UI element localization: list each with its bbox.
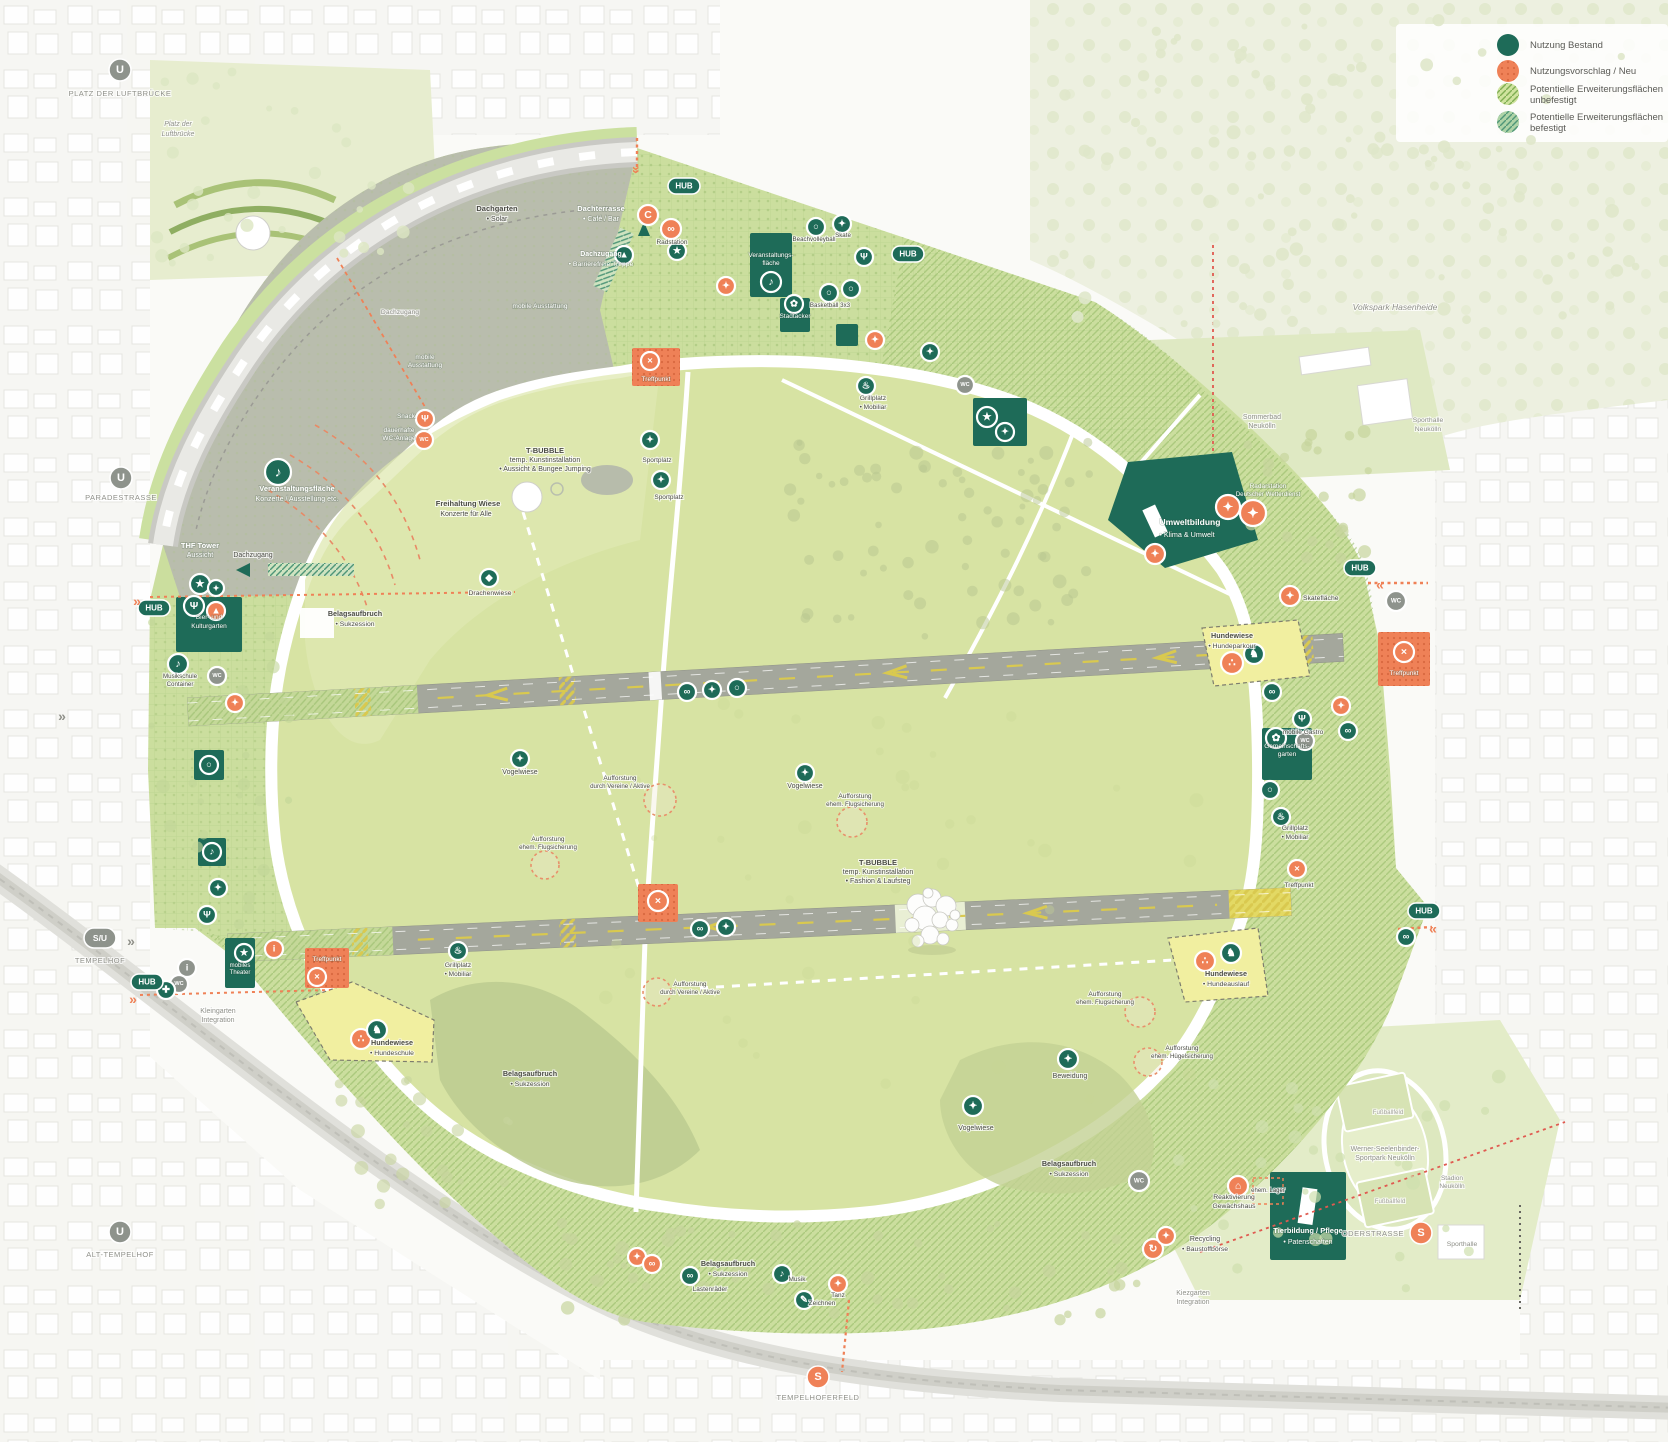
map-label: temp. Kunstinstallation (510, 457, 581, 464)
entry-chevron: » (1376, 579, 1384, 595)
grill-icon: ♨ (449, 942, 467, 960)
map-label: Sportplatz (642, 457, 671, 464)
svg-text:∞: ∞ (1403, 932, 1410, 943)
svg-text:WC: WC (212, 673, 221, 679)
legend-label: Potentielle Erweiterungsflächen (1530, 84, 1663, 95)
hub-marker: HUB (138, 600, 170, 616)
map-label: • Sukzession (1049, 1171, 1088, 1178)
bird-icon: ✦ (963, 1096, 983, 1116)
map-label: Fußballfeld (1375, 1198, 1406, 1205)
map-label: Bier- und (196, 614, 223, 621)
svg-text:♪: ♪ (175, 658, 180, 670)
tennis-icon: ○ (842, 280, 860, 298)
skate-icon: ✦ (833, 215, 851, 233)
map-label: • Café / Bar (583, 216, 620, 223)
svg-text:✦: ✦ (633, 1252, 641, 1263)
svg-text:×: × (647, 356, 653, 367)
map-label: Musik (789, 1276, 807, 1283)
hub-marker: HUB (131, 974, 163, 990)
svg-text:◆: ◆ (484, 573, 493, 584)
map-label: temp. Kunstinstallation (843, 869, 914, 876)
station-label: PARADESTRASSE (85, 493, 157, 502)
map-label: durch Vereine / Aktive (590, 783, 650, 790)
svg-text:✚: ✚ (162, 985, 170, 996)
svg-text:✦: ✦ (1286, 590, 1295, 602)
svg-text:○: ○ (734, 683, 740, 694)
gastro-icon: Ψ (855, 248, 873, 266)
map-label: Reaktivierung (1213, 1194, 1255, 1201)
event-icon: ♪ (761, 272, 781, 292)
map-label: Beweidung (1053, 1073, 1088, 1080)
entry-chevron: » (129, 991, 137, 1007)
treffpunkt-icon: × (648, 891, 668, 911)
map-label: Vogelwiese (958, 1125, 994, 1132)
map-label: Belagsaufbruch (701, 1259, 755, 1268)
map-label: Tanz (831, 1292, 845, 1299)
map-label: Aufforstung (603, 775, 637, 782)
bike-icon: ∞ (1397, 928, 1415, 946)
sport-icon: ✦ (652, 471, 670, 489)
bird-icon: ✦ (511, 750, 529, 768)
tempelhofer-feld-plan[interactable]: ♪C▲ΨWC★✦◆✦✦✦✦✦✦∞✦○∞✦✦✦✦✦∴♞∴♞∴♞Ψ▲♪WC✦✦ΨiW… (0, 0, 1668, 1442)
station-label: ODERSTRASSE (1342, 1229, 1404, 1238)
svg-text:U: U (117, 472, 125, 484)
svg-text:♨: ♨ (1277, 812, 1285, 823)
map-label: Lastenräder (693, 1286, 729, 1293)
svg-text:∞: ∞ (1269, 687, 1276, 698)
wc-icon: WC (415, 431, 433, 449)
svg-text:Ψ: Ψ (860, 252, 868, 263)
svg-text:✦: ✦ (646, 435, 654, 446)
map-label: • Mobiliar (1282, 834, 1310, 841)
svg-text:♨: ♨ (454, 946, 462, 957)
map-label: Stadtacker (779, 313, 811, 320)
svg-text:×: × (314, 972, 320, 983)
map-label: Treffpunkt (1390, 670, 1419, 677)
map-label: • Hundeschule (370, 1050, 414, 1057)
hub-marker: HUB (892, 246, 924, 262)
svg-text:Ψ: Ψ (203, 910, 211, 921)
station-label: TEMPELHOFERFELD (777, 1393, 860, 1402)
map-label: T-BUBBLE (526, 446, 564, 455)
svg-text:♞: ♞ (1226, 947, 1235, 959)
map-label: • Klima & Umwelt (1159, 530, 1214, 539)
svg-text:×: × (1294, 864, 1300, 875)
gastro-icon: Ψ (1293, 710, 1311, 728)
map-label: Hundewiese (371, 1038, 413, 1047)
svg-text:WC: WC (960, 382, 969, 388)
svg-text:i: i (273, 944, 276, 955)
map-label: Treffpunkt (1285, 882, 1314, 889)
map-label: Aussicht (187, 552, 214, 559)
climbing-icon: ✦ (996, 423, 1014, 441)
svg-text:∴: ∴ (1228, 657, 1236, 669)
svg-text:★: ★ (239, 948, 249, 959)
treffpunkt-icon: × (1394, 642, 1414, 662)
map-label: Platz der (164, 121, 192, 128)
map-label: Freihaltung Wiese (436, 499, 501, 508)
sport-icon: ✦ (641, 431, 659, 449)
svg-text:C: C (644, 209, 652, 221)
svg-text:♪: ♪ (275, 465, 282, 480)
map-label: Hundewiese (1211, 631, 1253, 640)
map-label: Basketball 3x3 (810, 302, 851, 309)
map-label: • Baustoffbörse (1182, 1246, 1228, 1253)
gastronomy-icon: Ψ (184, 596, 204, 616)
svg-text:S: S (1417, 1227, 1424, 1239)
svg-text:✦: ✦ (834, 1279, 842, 1290)
map-label: Sommerbad (1243, 414, 1281, 421)
map-label: Snack (397, 413, 416, 420)
map-label: Beachvolleyball (793, 236, 836, 243)
svg-text:○: ○ (1267, 785, 1273, 796)
svg-text:✦: ✦ (231, 698, 239, 709)
map-label: Grillplatz (860, 395, 887, 402)
svg-text:WC: WC (1134, 1178, 1145, 1185)
kiosk-icon: ✦ (226, 694, 244, 712)
map-label: Neukölln (1415, 426, 1442, 433)
map-label: • Mobiliar (445, 971, 473, 978)
greenhouse-icon: ⌂ (1228, 1176, 1248, 1196)
map-label: Musikschule (163, 673, 198, 680)
radar-icon: ✦ (1216, 495, 1240, 519)
svg-text:WC: WC (419, 437, 428, 443)
info-icon: i (265, 940, 283, 958)
entry-chevron: » (629, 166, 645, 174)
svg-text:✦: ✦ (212, 583, 219, 593)
map-label: mobiles (230, 963, 251, 969)
map-label: Dachgarten (476, 204, 518, 213)
map-label: Kleingarten (200, 1008, 236, 1015)
dog-icon: ♞ (1221, 943, 1241, 963)
legend-label: Potentielle Erweiterungsflächen (1530, 112, 1663, 123)
map-label: Skatefläche (1303, 595, 1339, 602)
bike-station-icon: ∞ (661, 219, 681, 239)
svg-text:♪: ♪ (780, 1269, 785, 1280)
map-label: Recycling (1190, 1236, 1220, 1243)
treffpunkt-icon: × (641, 352, 659, 370)
afforestation-circle (531, 851, 559, 879)
education-icon: ✦ (1240, 500, 1266, 526)
map-label: Belagsaufbruch (328, 609, 382, 618)
svg-text:✿: ✿ (790, 299, 798, 310)
music-school-icon: ♪ (168, 654, 188, 674)
grazing-icon: ✦ (1058, 1049, 1078, 1069)
svg-text:○: ○ (826, 288, 832, 299)
svg-text:♨: ♨ (862, 381, 870, 392)
map-label: mobile (415, 354, 435, 361)
grill-icon: ♨ (1272, 808, 1290, 826)
theater-icon: ★ (235, 944, 253, 962)
svg-text:✦: ✦ (708, 685, 716, 696)
map-label: ehem. Lager (1251, 1188, 1285, 1194)
map-label: fläche (762, 260, 780, 267)
svg-text:○: ○ (813, 222, 819, 233)
svg-text:∞: ∞ (697, 924, 704, 935)
map-label: • Aussicht & Bungee Jumping (499, 466, 591, 473)
map-label: Tierbildung / Pflege (1273, 1226, 1342, 1235)
map-label: Sportplatz (654, 494, 683, 501)
pedestrian-icon: ✦ (703, 681, 721, 699)
svg-text:✦: ✦ (516, 754, 524, 765)
paw-icon: ∴ (1195, 951, 1215, 971)
svg-text:✦: ✦ (1151, 548, 1160, 560)
svg-text:✦: ✦ (1162, 1231, 1170, 1242)
hub-marker: HUB (668, 178, 700, 194)
table-tennis-icon: ○ (200, 756, 218, 774)
sport-icon: ✦ (921, 343, 939, 361)
map-label: Grillplatz (445, 962, 472, 969)
svg-text:✦: ✦ (1337, 701, 1345, 712)
svg-text:×: × (1401, 646, 1407, 658)
entry-chevron: » (1429, 923, 1437, 939)
map-label: ehem. Flugsicherung (519, 844, 577, 851)
svg-text:♪: ♪ (768, 276, 773, 288)
map-label: Sporthalle (1413, 417, 1444, 424)
map-label: Aufforstung (1165, 1045, 1199, 1052)
svg-text:Ψ: Ψ (190, 600, 199, 612)
map-label: Gemeinschafts- (1264, 743, 1310, 750)
svg-text:HUB: HUB (1415, 907, 1433, 916)
cafe-icon: C (638, 205, 658, 225)
svg-text:HUB: HUB (145, 604, 163, 613)
map-label: Gewächshaus (1212, 1203, 1256, 1210)
svg-text:○: ○ (206, 760, 212, 771)
map-label: T-BUBBLE (859, 858, 897, 867)
new-use-icon: ✦ (866, 331, 884, 349)
map-label: dauerhafte (383, 427, 414, 434)
svg-text:✦: ✦ (1223, 500, 1234, 514)
snack-icon: Ψ (416, 410, 434, 428)
viewpoint-icon: ✦ (208, 580, 224, 596)
map-label: Treffpunkt (642, 376, 671, 383)
tools-icon: ✦ (1157, 1227, 1175, 1245)
map-label: Integration (1176, 1299, 1209, 1306)
grill-icon: ♨ (857, 377, 875, 395)
map-label: • Barrierefreie Treppe (569, 261, 634, 268)
svg-text:✦: ✦ (214, 883, 222, 894)
map-label: • Mobiliar (860, 404, 888, 411)
map-label: Stadion (1441, 1175, 1463, 1182)
entry-chevron: » (133, 593, 141, 609)
svg-text:✦: ✦ (722, 281, 730, 292)
svg-text:✦: ✦ (838, 219, 846, 230)
paw-icon: ∴ (1221, 652, 1243, 674)
svg-text:i: i (186, 963, 189, 974)
svg-text:S/U: S/U (93, 933, 107, 943)
map-label: Volkspark Hasenheide (1353, 302, 1438, 312)
map-label: Radstation (656, 239, 687, 246)
svg-text:✦: ✦ (1001, 427, 1009, 438)
map-label: Theater (230, 970, 251, 976)
svg-text:♞: ♞ (372, 1024, 381, 1036)
map-label: ehem. Hügelsicherung (1151, 1053, 1213, 1060)
hub-marker: HUB (1408, 903, 1440, 919)
wc-icon: WC (1129, 1171, 1149, 1191)
entry-chevron: » (810, 1379, 826, 1387)
gastronomy-icon: Ψ (198, 906, 216, 924)
map-label: Treffpunkt (313, 956, 342, 963)
bike-icon: ∞ (678, 683, 696, 701)
map-label: • Fashion & Laufsteg (846, 878, 911, 885)
svg-text:∞: ∞ (684, 687, 691, 698)
legend-label: unbefestigt (1530, 95, 1577, 106)
svg-text:∞: ∞ (667, 223, 675, 235)
map-label: Luftbrücke (162, 131, 195, 138)
culture-icon: ♪ (203, 843, 221, 861)
map-label: Dachzugang (580, 251, 622, 258)
map-label: mobile Gastro (1283, 729, 1324, 736)
map-label: • Patenschaften (1283, 1239, 1332, 1246)
map-label: Veranstaltungsfläche (259, 484, 334, 493)
map-label: Werner-Seelenbinder- (1351, 1146, 1420, 1153)
map-label: Ausstattung (408, 362, 443, 369)
bike-icon: ∞ (691, 920, 709, 938)
svg-text:✦: ✦ (1247, 506, 1259, 521)
map-label: Belagsaufbruch (1042, 1159, 1096, 1168)
map-label: Sporthalle (1447, 1241, 1478, 1248)
svg-text:×: × (655, 895, 661, 907)
map-label: Aufforstung (1088, 991, 1122, 998)
map-label: ehem. Flugsicherung (826, 801, 884, 808)
map-label: • Hundeauslauf (1203, 981, 1249, 988)
svg-text:∞: ∞ (1345, 726, 1352, 737)
basketball-icon: ○ (820, 284, 838, 302)
svg-text:HUB: HUB (138, 978, 156, 987)
station-label: ALT-TEMPELHOF (86, 1250, 154, 1259)
map-label: Container (167, 681, 194, 688)
map-label: Vogelwiese (787, 783, 823, 790)
kite-icon: ◆ (480, 569, 498, 587)
svg-text:✦: ✦ (926, 347, 934, 358)
svg-text:✦: ✦ (969, 1100, 978, 1112)
map-label: Zeichnen (809, 1300, 836, 1307)
map-label: durch Vereine / Aktive (660, 989, 720, 996)
station-label: TEMPELHOF (75, 956, 125, 965)
svg-text:∴: ∴ (1202, 955, 1209, 967)
treffpunkt-icon: × (308, 968, 326, 986)
svg-text:HUB: HUB (899, 250, 917, 259)
svg-text:★: ★ (195, 578, 205, 590)
volleyball-icon: ○ (807, 218, 825, 236)
map-label: ehem. Flugsicherung (1076, 999, 1134, 1006)
wc-icon: WC (208, 667, 226, 685)
music-event-icon: ♪ (265, 459, 291, 485)
youth-icon: ✦ (1145, 544, 1165, 564)
map-label: Neukölln (1439, 1183, 1465, 1190)
svg-text:Ψ: Ψ (1298, 714, 1306, 725)
map-label: • Sukzession (510, 1081, 549, 1088)
svg-text:↻: ↻ (1149, 1243, 1158, 1255)
afforestation-circle (837, 807, 867, 837)
svg-text:✦: ✦ (722, 922, 730, 933)
map-label: Kiezgarten (1176, 1290, 1210, 1297)
svg-text:✦: ✦ (801, 768, 809, 779)
map-canvas[interactable]: ♪C▲ΨWC★✦◆✦✦✦✦✦✦∞✦○∞✦✦✦✦✦∴♞∴♞∴♞Ψ▲♪WC✦✦ΨiW… (0, 0, 1668, 1442)
hub-marker: HUB (1344, 560, 1376, 576)
map-label: Radarstation (1250, 483, 1287, 490)
svg-text:✎: ✎ (800, 1295, 808, 1306)
map-label: Aufforstung (531, 836, 565, 843)
map-label: THF Tower (181, 541, 219, 550)
map-label: Konzerte / Ausstellung etc. (256, 496, 339, 503)
bike-icon: ∞ (1339, 722, 1357, 740)
map-label: Veranstaltungs- (748, 252, 793, 259)
svg-text:WC: WC (1391, 598, 1402, 605)
bike-icon: ∞ (643, 1255, 661, 1273)
map-label: Konzerte für Alle (440, 511, 491, 518)
map-label: Sportpark Neukölln (1355, 1155, 1415, 1162)
new-use-icon: ✦ (717, 277, 735, 295)
svg-text:○: ○ (848, 284, 854, 295)
map-label: Fußballfeld (1373, 1109, 1404, 1116)
svg-text:♪: ♪ (210, 847, 215, 858)
map-label: Deutscher Wetterdienst (1236, 491, 1301, 498)
map-label: Dachzugang (233, 552, 272, 559)
svg-text:✦: ✦ (657, 475, 665, 486)
map-label: Drachenwiese (468, 590, 511, 597)
skate-icon: ✦ (1280, 586, 1300, 606)
map-label: • Sukzession (708, 1271, 747, 1278)
airfield (271, 361, 1258, 1216)
map-label: WC-Anlage (382, 435, 416, 442)
basecamp-icon: ★ (977, 407, 997, 427)
map-label: Aufforstung (673, 981, 707, 988)
boule-icon: ○ (1261, 781, 1279, 799)
map-label: Grillplatz (1282, 825, 1309, 832)
map-label: Hundewiese (1205, 969, 1247, 978)
map-label: Neukölln (1248, 423, 1275, 430)
legend-label: befestigt (1530, 123, 1566, 134)
legend-label: Nutzung Bestand (1530, 40, 1603, 51)
new-use-icon: ✦ (1332, 697, 1350, 715)
map-label: Vogelwiese (502, 769, 538, 776)
urban-farm-icon: ✿ (785, 295, 803, 313)
map-label: Integration (201, 1017, 234, 1024)
svg-text:∴: ∴ (358, 1033, 365, 1045)
svg-text:HUB: HUB (675, 182, 693, 191)
wc-icon: WC (1386, 591, 1406, 611)
svg-text:★: ★ (672, 246, 682, 257)
map-label: Skate (835, 232, 851, 239)
dance-icon: ✦ (829, 1275, 847, 1293)
map-label: Belagsaufbruch (503, 1069, 557, 1078)
svg-text:U: U (116, 64, 124, 76)
entry-chevron: » (127, 933, 135, 949)
svg-text:★: ★ (982, 411, 992, 423)
map-label: garten (1278, 751, 1297, 758)
svg-text:✦: ✦ (871, 335, 879, 346)
sport-icon: ○ (728, 679, 746, 697)
map-label: Aufforstung (838, 793, 872, 800)
map-label: Umweltbildung (1160, 517, 1221, 527)
svg-text:U: U (116, 1226, 124, 1238)
tower-icon: ★ (190, 574, 210, 594)
run-icon: ✦ (209, 879, 227, 897)
station-label: PLATZ DER LUFTBRÜCKE (69, 89, 172, 98)
dog-icon: ♞ (367, 1020, 387, 1040)
svg-text:WC: WC (174, 981, 183, 987)
svg-text:Ψ: Ψ (421, 414, 429, 425)
entry-chevron: » (58, 708, 66, 724)
legend-label: Nutzungsvorschlag / Neu (1530, 66, 1636, 77)
map-label: Kulturgarten (191, 623, 227, 630)
svg-text:HUB: HUB (1351, 564, 1369, 573)
map-label: • Hundeparkour (1208, 643, 1256, 650)
svg-text:∞: ∞ (687, 1271, 694, 1282)
wc-icon: WC (956, 376, 974, 394)
map-label: Dachterrasse (577, 204, 625, 213)
